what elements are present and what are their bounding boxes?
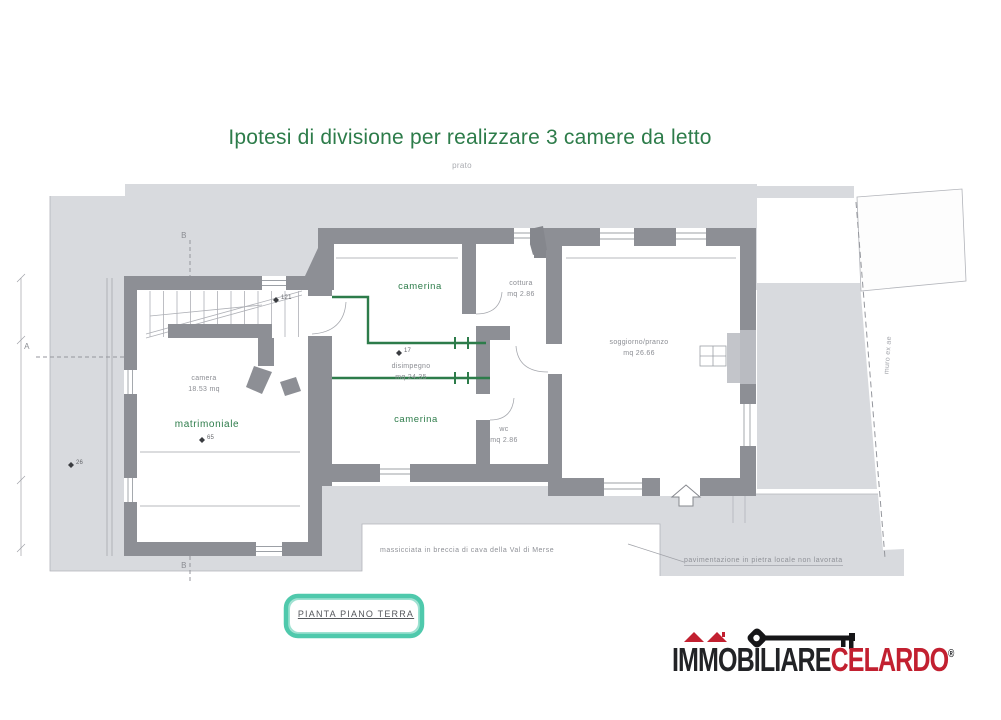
section-mark-b-top: B [177, 230, 191, 242]
room-label-disimpegno: disimpegno mq 24.35 [373, 362, 449, 383]
note-massicciata: massicciata in breccia di cava della Val… [380, 546, 650, 557]
room-label-matrimoniale: matrimoniale [147, 417, 267, 432]
logo-wordmark: IMMOBILIARECELARDO® [672, 641, 915, 679]
level-marker: 65 [207, 434, 223, 443]
page-title: Ipotesi di divisione per realizzare 3 ca… [170, 126, 770, 150]
section-mark-a: A [20, 341, 34, 353]
floor-plan-drawing [0, 0, 1001, 720]
room-label-cottura: cottura mq 2.86 [493, 279, 549, 300]
room-label-camerina-2: camerina [366, 413, 466, 427]
plan-title-label: PIANTA PIANO TERRA [294, 608, 418, 622]
level-marker: 17 [404, 347, 420, 356]
note-pavimentazione: pavimentazione in pietra locale non lavo… [684, 556, 874, 567]
scanned-plan-page: Ipotesi di divisione per realizzare 3 ca… [0, 0, 1001, 720]
level-marker: 121 [281, 294, 301, 303]
room-label-soggiorno: soggiorno/pranzo mq 26.66 [589, 338, 689, 359]
adjacent-parcel-outline [857, 189, 966, 291]
level-marker: 26 [76, 459, 92, 468]
label-prato: prato [437, 160, 487, 172]
section-mark-b-bottom: B [177, 560, 191, 572]
room-label-camera: camera 18.53 mq [166, 374, 242, 395]
room-label-wc: wc mq 2.86 [478, 425, 530, 446]
room-label-camerina-1: camerina [370, 280, 470, 294]
